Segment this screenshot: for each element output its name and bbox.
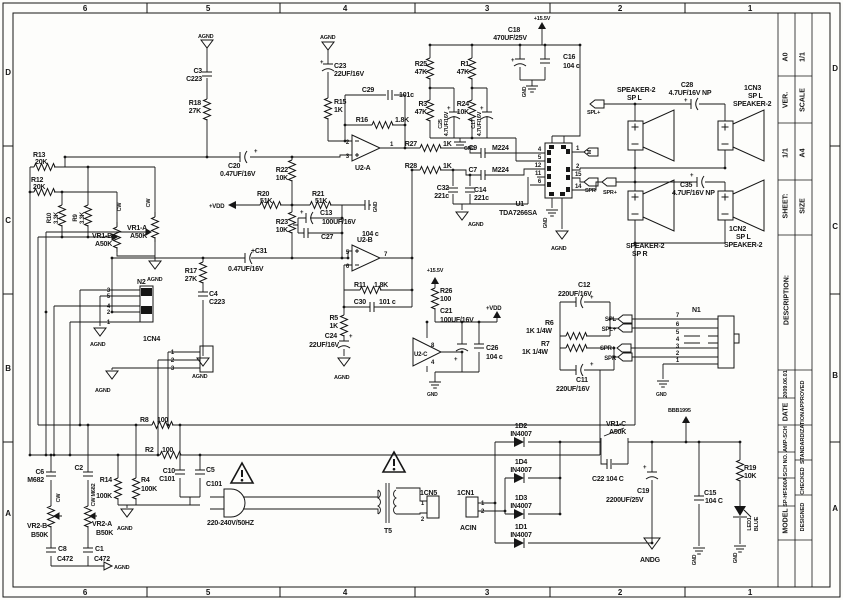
agnd-symbol [197, 358, 209, 366]
label-vr2-a: VR2-A [92, 521, 112, 528]
label-in4007: IN4007 [510, 503, 532, 510]
cap-c26 [474, 344, 484, 348]
label-3: 3 [171, 366, 175, 372]
label-r21: R21 [312, 191, 325, 198]
label-r20: R20 [257, 191, 270, 198]
label-c23: C23 [334, 63, 347, 70]
label-spl+: SPL+ [587, 110, 600, 116]
agnd-symbol [201, 40, 213, 48]
label-+: + [590, 295, 594, 301]
label-c35: C35 [680, 182, 693, 189]
cap-c3 [202, 72, 212, 76]
label-m: M [587, 149, 593, 154]
label-+: + [300, 210, 304, 216]
label-n1: N1 [692, 307, 701, 314]
pot-vr1b [112, 222, 121, 252]
flag-spl [618, 315, 632, 323]
flag-splplus [618, 324, 632, 332]
jack-n2 [140, 286, 153, 322]
label-100: 100 [162, 447, 173, 454]
label-n2: N2 [137, 279, 146, 286]
label-1: 1 [481, 501, 485, 507]
label-a50k: A50K [609, 429, 626, 436]
label-c9: C9 [468, 145, 477, 152]
label-1.8k: 1.8K [395, 117, 409, 124]
label-a50k: A50K [130, 233, 147, 240]
label-104-c: 104 c [486, 354, 503, 361]
label-r24: R24 [457, 101, 470, 108]
label-blue: BLUE [754, 516, 760, 531]
label-c11: C11 [576, 377, 588, 384]
label-100: 100 [440, 296, 451, 303]
flag-splplus [590, 100, 604, 108]
label-2: 2 [676, 351, 680, 357]
label-+15.5v: +15.5V [534, 16, 551, 22]
grid-ref: B [5, 364, 11, 373]
label-speaker-2: SPEAKER-2 [617, 87, 656, 94]
label-1: 1 [576, 146, 580, 152]
wires-opamp-stage [228, 50, 537, 382]
label-2: 2 [171, 358, 175, 364]
label-c32: C32 [437, 185, 450, 192]
label-r3: R3 [418, 101, 427, 108]
agnd-symbol [456, 212, 468, 220]
label-+: + [643, 465, 647, 471]
label-47k: 47K [415, 109, 427, 116]
label-0.47uf-16v: 0.47UF/16V [220, 171, 256, 178]
label-m224: M224 [492, 167, 509, 174]
pot-vr2b [48, 505, 60, 527]
label-in4007: IN4007 [510, 431, 532, 438]
agnd-symbol [556, 231, 568, 239]
label-sp-l: SP L [748, 93, 764, 100]
label-104-c: 104 c [563, 63, 580, 70]
agnd-symbol [104, 562, 112, 570]
resistor-r7 [566, 345, 587, 352]
label-1cn1: 1CN1 [457, 490, 474, 497]
label-1: 1 [107, 320, 111, 326]
label-spl+: SPL+ [602, 327, 617, 333]
resistor-r3 [427, 100, 434, 121]
label-speaker-2: SPEAKER-2 [724, 242, 763, 249]
label-r22: R22 [276, 167, 289, 174]
label-1k: 1K [443, 163, 452, 170]
label-100k: 100K [96, 493, 112, 500]
label-4: 4 [676, 337, 680, 343]
warning-icon [231, 463, 253, 483]
opamp-u2a [352, 135, 380, 161]
label-r7: R7 [541, 341, 550, 348]
label-spl: SPL [605, 317, 617, 323]
jack-n1 [718, 316, 739, 368]
label-1k-1-4w: 1K 1/4W [522, 349, 548, 356]
flag-spr [618, 353, 632, 361]
label-c472: C472 [57, 556, 73, 563]
label-51k: 51K [315, 198, 327, 205]
cap-c4 [198, 292, 208, 296]
cap-c1 [83, 548, 93, 552]
gnd-symbol [734, 546, 746, 552]
label-1d2: 1D2 [515, 423, 528, 430]
label-agnd: AGND [117, 526, 133, 532]
label-u2-b: U2-B [357, 237, 373, 244]
agnd-symbol [121, 509, 133, 517]
label-sp-l: SP L [736, 234, 752, 241]
label-1: 1 [171, 350, 175, 356]
cap-c35 [697, 176, 704, 188]
grid-ref: 4 [343, 588, 348, 597]
label-r15: R15 [334, 99, 347, 106]
label-5: 5 [538, 155, 542, 161]
label-spr+: SPR+ [603, 190, 617, 196]
power-net-arrow [682, 416, 690, 423]
label-8: 8 [431, 343, 435, 349]
label-gnd: GND [733, 552, 739, 563]
power-vdd-arrow [493, 311, 501, 318]
label-cw: CW [56, 493, 62, 503]
resistor-r28 [420, 167, 441, 174]
label-2: 2 [107, 310, 111, 316]
cap-c24 [338, 341, 350, 348]
grid-ref: D [832, 64, 838, 73]
label-2: 2 [576, 164, 580, 170]
label-r10: R10 [47, 212, 53, 223]
label-c18: C18 [508, 27, 521, 34]
label-27k: 27K [185, 276, 197, 283]
label-led1: LED1 [747, 517, 753, 530]
resistor-r25 [427, 58, 434, 79]
label-10k: 10K [276, 227, 288, 234]
label-r23: R23 [276, 219, 289, 226]
grid-ref: 5 [206, 4, 211, 13]
label-+: + [320, 60, 324, 66]
label-r28: R28 [405, 163, 418, 170]
label-220-240v-50hz: 220-240V/50HZ [207, 520, 255, 527]
connector-1cn1 [466, 497, 478, 517]
label-r16: R16 [356, 117, 369, 124]
resistor-r24 [469, 100, 476, 121]
label-47k: 47K [415, 69, 427, 76]
resistor-r26 [432, 288, 439, 309]
grid-ref: 5 [206, 588, 211, 597]
label-c101: C101 [206, 481, 222, 488]
diode-1d1 [514, 538, 524, 548]
label-gnd: GND [373, 201, 379, 212]
label-1: 1 [390, 142, 394, 148]
label-spr: SPR [585, 188, 596, 194]
label-c1: C1 [95, 546, 104, 553]
label-vr1-c: VR1-C [606, 421, 626, 428]
label-220uf-16v: 220UF/16V [556, 386, 590, 393]
cap-gnd-small [365, 200, 369, 210]
label-r12: R12 [31, 177, 44, 184]
label-agnd: AGND [320, 35, 336, 41]
ic-u1-tda7266sa [545, 143, 572, 198]
agnd-symbol [94, 328, 106, 336]
schematic-page: 654321654321DCBADCBAAGNDC3C223R1827KC200… [0, 0, 843, 600]
label-104-c: 104 C [705, 498, 723, 505]
cap-c16 [540, 59, 550, 63]
label-r2: R2 [145, 447, 154, 454]
label-t5: T5 [384, 528, 392, 535]
label-+c31: +C31 [251, 248, 267, 255]
label-acin: ACIN [460, 525, 476, 532]
cap-c23 [322, 64, 334, 71]
cap-c2 [83, 472, 93, 476]
label-47k: 47K [457, 69, 469, 76]
label-5: 5 [107, 294, 111, 300]
label-+: + [511, 58, 515, 64]
label-c27: C27 [321, 234, 334, 241]
diode-1d4 [514, 473, 524, 483]
label-c20: C20 [228, 163, 241, 170]
pot-vr1a [146, 212, 159, 242]
gnd-symbol [693, 548, 705, 554]
label-sp-r: SP R [632, 251, 648, 258]
agnd-symbol [322, 42, 334, 50]
label-u1: U1 [515, 201, 524, 208]
agnd-symbol [149, 261, 161, 269]
label-100uf-16v: 100UF/16V [322, 219, 356, 226]
label-r17: R17 [185, 268, 198, 275]
label-1: 1 [676, 358, 680, 364]
label-vr1-a: VR1-A [127, 225, 147, 232]
label-gnd: GND [656, 392, 667, 398]
grid-ref: 1 [748, 4, 753, 13]
cap-c20 [240, 151, 247, 163]
label-cw: CW [146, 198, 152, 208]
label-gnd: GND [692, 554, 698, 565]
label-+: + [254, 149, 258, 155]
label-agnd: AGND [468, 222, 484, 228]
label-+vdd: +VDD [209, 204, 225, 210]
label-1k: 1K [443, 141, 452, 148]
label-10k: 10K [276, 175, 288, 182]
label-r25: R25 [415, 61, 428, 68]
label-22uf-16v: 22UF/16V [309, 342, 339, 349]
schematic-canvas: 654321654321DCBADCBAAGNDC3C223R1827KC200… [0, 0, 843, 600]
cap-c19 [646, 472, 658, 479]
grid-ref: 3 [485, 588, 490, 597]
label-agnd: AGND [147, 277, 163, 283]
cap-c6 [46, 472, 56, 476]
label-4: 4 [538, 147, 542, 153]
grid-ref: 4 [343, 4, 348, 13]
label-b50k: B50K [96, 530, 113, 537]
label-m682: M682 [27, 477, 44, 484]
label-100k: 100K [141, 486, 157, 493]
cap-c15 [694, 496, 704, 500]
resistor-r14 [115, 478, 122, 499]
gnd-symbol [546, 210, 558, 216]
labels-layer: 654321654321DCBADCBAAGNDC3C223R1827KC200… [5, 4, 838, 597]
label-c5: C5 [206, 467, 215, 474]
diode-1d2 [514, 437, 524, 447]
cap-c7 [481, 170, 485, 180]
label-c472: C472 [94, 556, 110, 563]
label-1cn3: 1CN3 [744, 85, 761, 92]
label-+: + [480, 106, 484, 112]
label-speaker-2: SPEAKER-2 [626, 243, 665, 250]
flag-sprplus [617, 344, 631, 352]
resistor-r23 [289, 212, 296, 233]
label-4.7uf-16v-np: 4.7UF/16V NP [669, 90, 712, 97]
label-c2: C2 [74, 465, 83, 472]
title-block-grid [778, 13, 812, 587]
label-in4007: IN4007 [510, 467, 532, 474]
label-cw: CW [117, 202, 123, 212]
label-4.7uf-16v-np: 4.7UF/16V NP [672, 190, 715, 197]
label-20k: 20K [35, 159, 47, 166]
label-1d3: 1D3 [515, 495, 528, 502]
label-c30: C30 [354, 299, 367, 306]
agnd-symbol [106, 371, 118, 379]
label-c24: C24 [325, 333, 338, 340]
label-r5: R5 [329, 315, 338, 322]
label-spr: SPR [604, 356, 617, 362]
led1-blue [733, 506, 751, 517]
label-12: 12 [535, 163, 542, 169]
label-470uf-25v: 470UF/25V [493, 35, 527, 42]
cap-c21 [456, 344, 468, 351]
label-10k: 10K [744, 473, 756, 480]
cap-c29 [388, 90, 392, 100]
resistor-r18 [204, 99, 211, 120]
label-c12: C12 [578, 282, 591, 289]
label-3.3k: 3.3K [54, 211, 60, 224]
label-22uf-16v: 22UF/16V [334, 71, 364, 78]
cap-c30 [370, 302, 374, 312]
label-c16: C16 [563, 54, 576, 61]
grid-ref: 1 [748, 588, 753, 597]
cap-c28 [691, 98, 698, 110]
label-vr2-b: VR2-B [27, 523, 47, 530]
resistor-r17 [200, 262, 207, 283]
label-2: 2 [421, 517, 425, 523]
gnd-symbol [657, 381, 669, 387]
label-c13: C13 [320, 210, 333, 217]
label-r26: R26 [440, 288, 453, 295]
power-15v-arrow [538, 22, 546, 29]
label-5: 5 [676, 330, 680, 336]
grid-ref: 6 [83, 588, 88, 597]
label-c101: C101 [159, 476, 175, 483]
label-1cn4: 1CN4 [143, 336, 160, 343]
label-m224: M224 [492, 145, 509, 152]
grid-ref: A [5, 509, 11, 518]
label-spr+: SPR+ [600, 346, 616, 352]
grid-ref: 3 [485, 4, 490, 13]
grid-ref: A [832, 504, 838, 513]
label-c15: C15 [704, 490, 717, 497]
label-+: + [349, 334, 353, 340]
label-a50k: A50K [95, 241, 112, 248]
label-3: 3 [676, 344, 680, 350]
label-6: 6 [676, 322, 680, 328]
label-51k: 51K [260, 198, 272, 205]
label-+15.5v: +15.5V [427, 268, 444, 274]
grid-ref: C [5, 216, 11, 225]
label-+: + [690, 173, 694, 179]
label-agnd: AGND [90, 342, 106, 348]
label-100uf-16v: 100UF/16V [440, 317, 474, 324]
resistor-r4 [133, 478, 140, 499]
grid-ref: 6 [83, 4, 88, 13]
opamp-u2b [352, 245, 380, 271]
label-agnd: AGND [114, 565, 130, 571]
label-c7: C7 [468, 167, 477, 174]
label-27k: 27K [189, 108, 201, 115]
label-1: 1 [421, 501, 425, 507]
label-c4: C4 [209, 291, 218, 298]
label-20k: 20K [33, 184, 45, 191]
resistor-r5 [341, 315, 348, 336]
label-agnd: AGND [198, 34, 214, 40]
label-221c: 221c [474, 195, 489, 202]
flag-sprplus [602, 178, 616, 186]
label-agnd: AGND [334, 375, 350, 381]
label-c22-104-c: C22 104 C [592, 476, 624, 483]
label-sp-l: SP L [627, 95, 643, 102]
label-15: 15 [575, 172, 582, 178]
label-1k: 1K [329, 323, 338, 330]
resistor-r27 [420, 145, 441, 152]
label-4: 4 [431, 360, 435, 366]
label-r13: R13 [33, 152, 46, 159]
label-14: 14 [575, 184, 582, 190]
label-3.3k: 3.3K [80, 211, 86, 224]
label-c26: C26 [486, 345, 499, 352]
frame [3, 3, 840, 597]
grid-ref: 2 [618, 4, 623, 13]
label-c14: C14 [474, 187, 487, 194]
label-101c: 101c [399, 92, 414, 99]
ac-plug [224, 489, 245, 517]
label-1d1: 1D1 [515, 524, 528, 531]
cap-c9 [481, 148, 485, 158]
label-220uf-16v: 220UF/16V [558, 291, 592, 298]
label-tda7266sa: TDA7266SA [499, 210, 537, 217]
resistor-r16 [372, 122, 393, 129]
label-r18: R18 [189, 100, 202, 107]
label-1k-1-4w: 1K 1/4W [526, 328, 552, 335]
label-+: + [454, 357, 458, 363]
agnd-symbol [338, 358, 350, 366]
diode-1d3 [514, 509, 524, 519]
grid-ref: B [832, 371, 838, 380]
grid-ref: D [5, 68, 11, 77]
label-4.7uf-16v: 4.7UF/16V [477, 111, 483, 136]
label-221c: 221c [434, 193, 449, 200]
label-1cn2: 1CN2 [729, 226, 746, 233]
cap-c22 [607, 459, 611, 469]
label-r1: R1 [460, 61, 469, 68]
label-1cn5: 1CN5 [420, 490, 437, 497]
label-4.7uf-16v: 4.7UF/16V [444, 111, 450, 136]
label-agnd: AGND [95, 388, 111, 394]
label-gnd: GND [543, 217, 549, 228]
label-bbb1995: BBB1995 [668, 408, 691, 414]
label-agnd: AGND [192, 374, 208, 380]
label-r14: R14 [100, 477, 113, 484]
label-+vdd: +VDD [486, 306, 502, 312]
label-c10: C10 [163, 468, 176, 475]
label-r9: R9 [73, 214, 79, 222]
resistor-r6 [566, 333, 587, 340]
label-b50k: B50K [31, 532, 48, 539]
resistor-r19 [737, 460, 744, 481]
power-15v-arrow [431, 277, 439, 284]
